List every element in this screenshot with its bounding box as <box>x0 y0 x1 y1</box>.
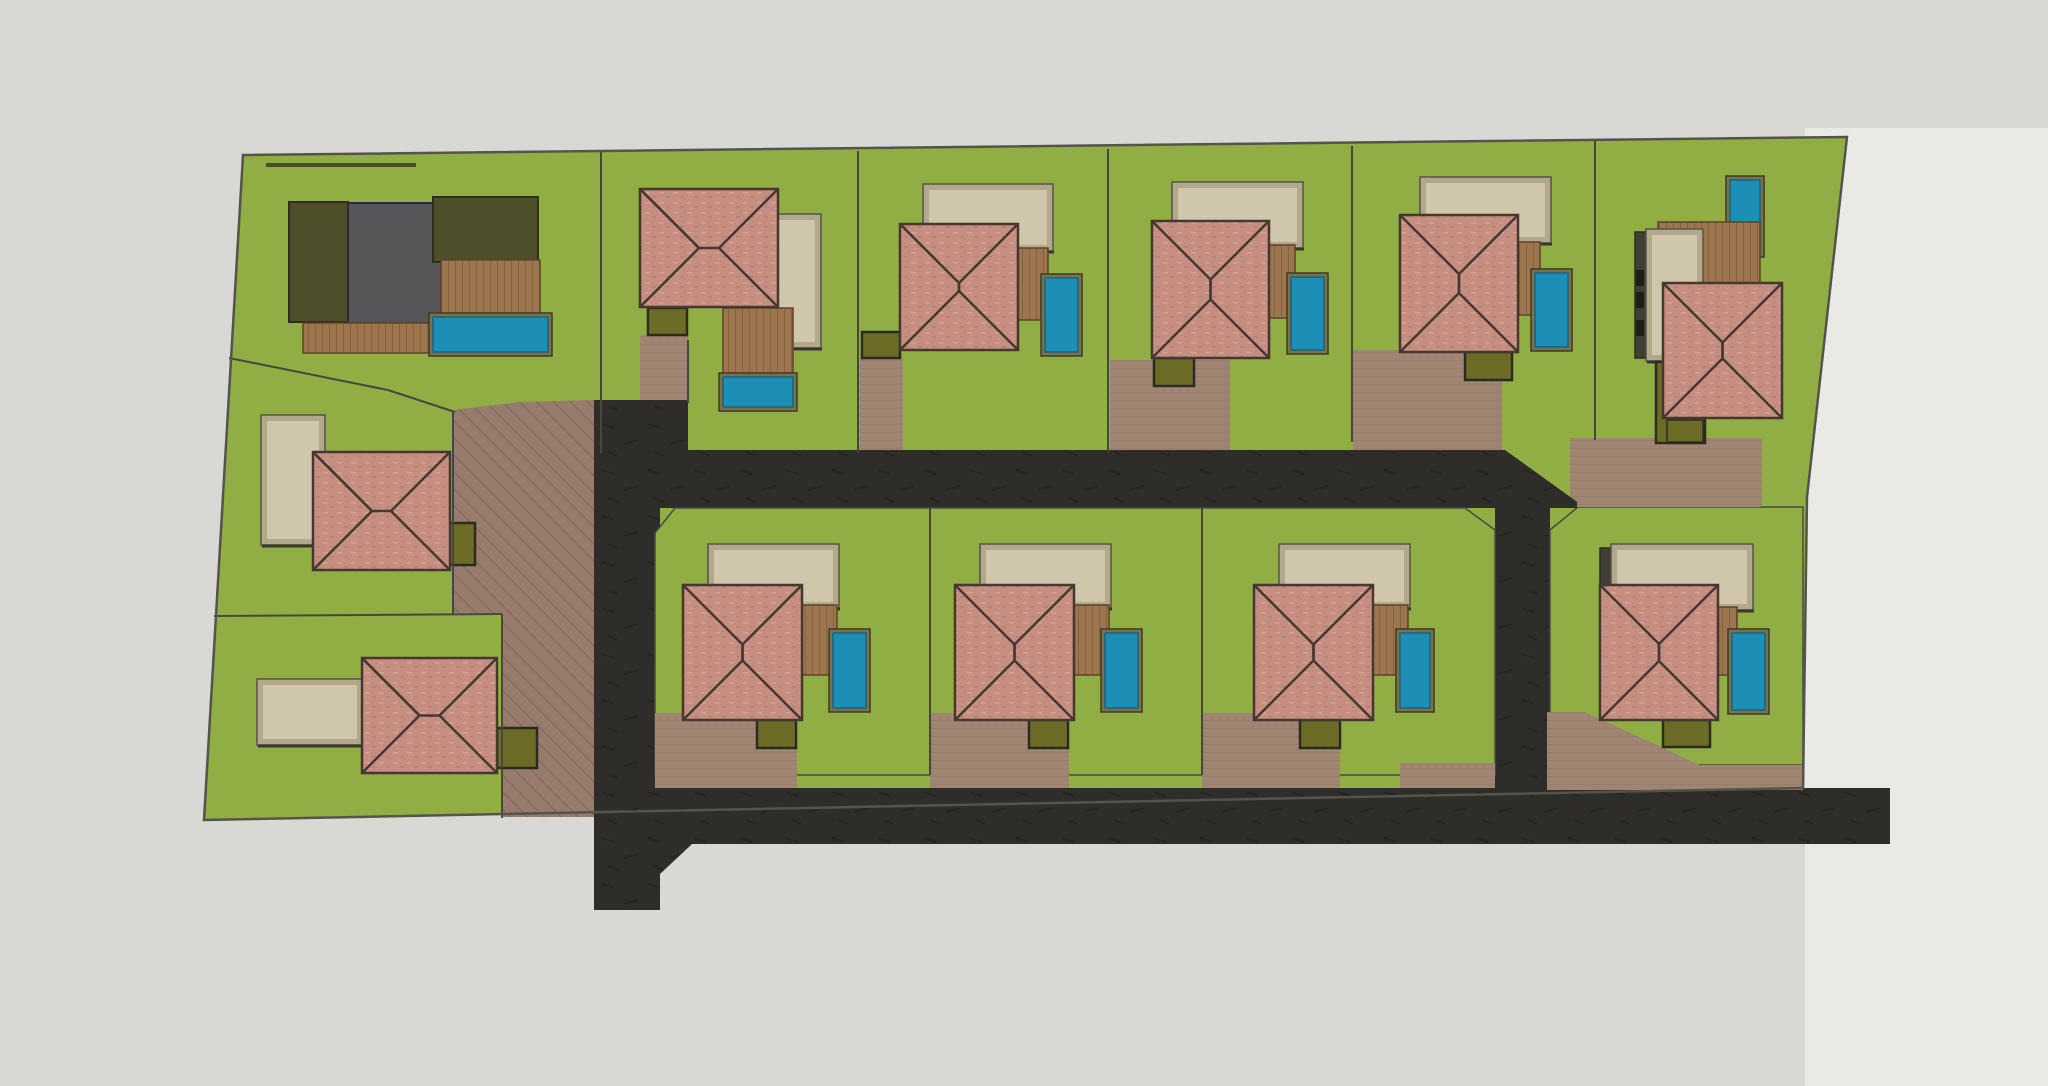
lot-l-pool <box>1400 633 1430 708</box>
lot-a-hedge <box>266 163 416 167</box>
lot-a-rear-wing <box>433 197 538 262</box>
lot-k-pool <box>1105 633 1138 708</box>
lot-h-terrace <box>260 682 360 742</box>
site-plan-viewport[interactable] <box>0 0 2048 1086</box>
lot-n-shed <box>1663 720 1710 747</box>
lot-f-window-3 <box>1636 320 1644 336</box>
lot-k-shed <box>1029 720 1068 748</box>
lot-f-window-1 <box>1636 270 1644 286</box>
road-upper-band <box>688 450 1580 508</box>
lot-j-pool <box>833 633 866 708</box>
road-east-connector <box>1495 504 1550 792</box>
lot-d-pool <box>1291 277 1324 350</box>
site-plan-page <box>0 0 2048 1086</box>
lot-a-garage-wing <box>289 202 348 322</box>
lot-f-shed-inner <box>1667 420 1703 442</box>
lot-a-deck-south <box>303 323 433 353</box>
lot-a-flat-roof-house <box>348 203 442 325</box>
lot-b-deck <box>723 308 793 377</box>
lot-a-deck-east <box>441 260 540 317</box>
lot-f-window-2 <box>1636 292 1644 308</box>
road-lower-band <box>660 788 1890 844</box>
lot-a-pool <box>433 317 548 352</box>
lot-e-shed <box>1465 352 1512 380</box>
lot-b-pool <box>723 377 793 407</box>
lot-l-paver-strip <box>1400 763 1495 788</box>
lot-e-pool <box>1535 273 1568 347</box>
lot-b-shed <box>648 308 687 335</box>
lot-c-pool <box>1045 278 1078 352</box>
lot-c-driveway <box>860 358 903 453</box>
background-right-panel <box>1805 128 2048 1086</box>
lot-j-shed <box>757 720 796 748</box>
lot-c-shed <box>862 332 900 358</box>
lot-n-pool <box>1732 633 1765 710</box>
lot-l-shed <box>1300 720 1340 748</box>
lot-d-shed <box>1154 358 1194 386</box>
lot-b-driveway <box>640 335 688 403</box>
lot-n-paver-top-strip <box>1577 480 1760 507</box>
